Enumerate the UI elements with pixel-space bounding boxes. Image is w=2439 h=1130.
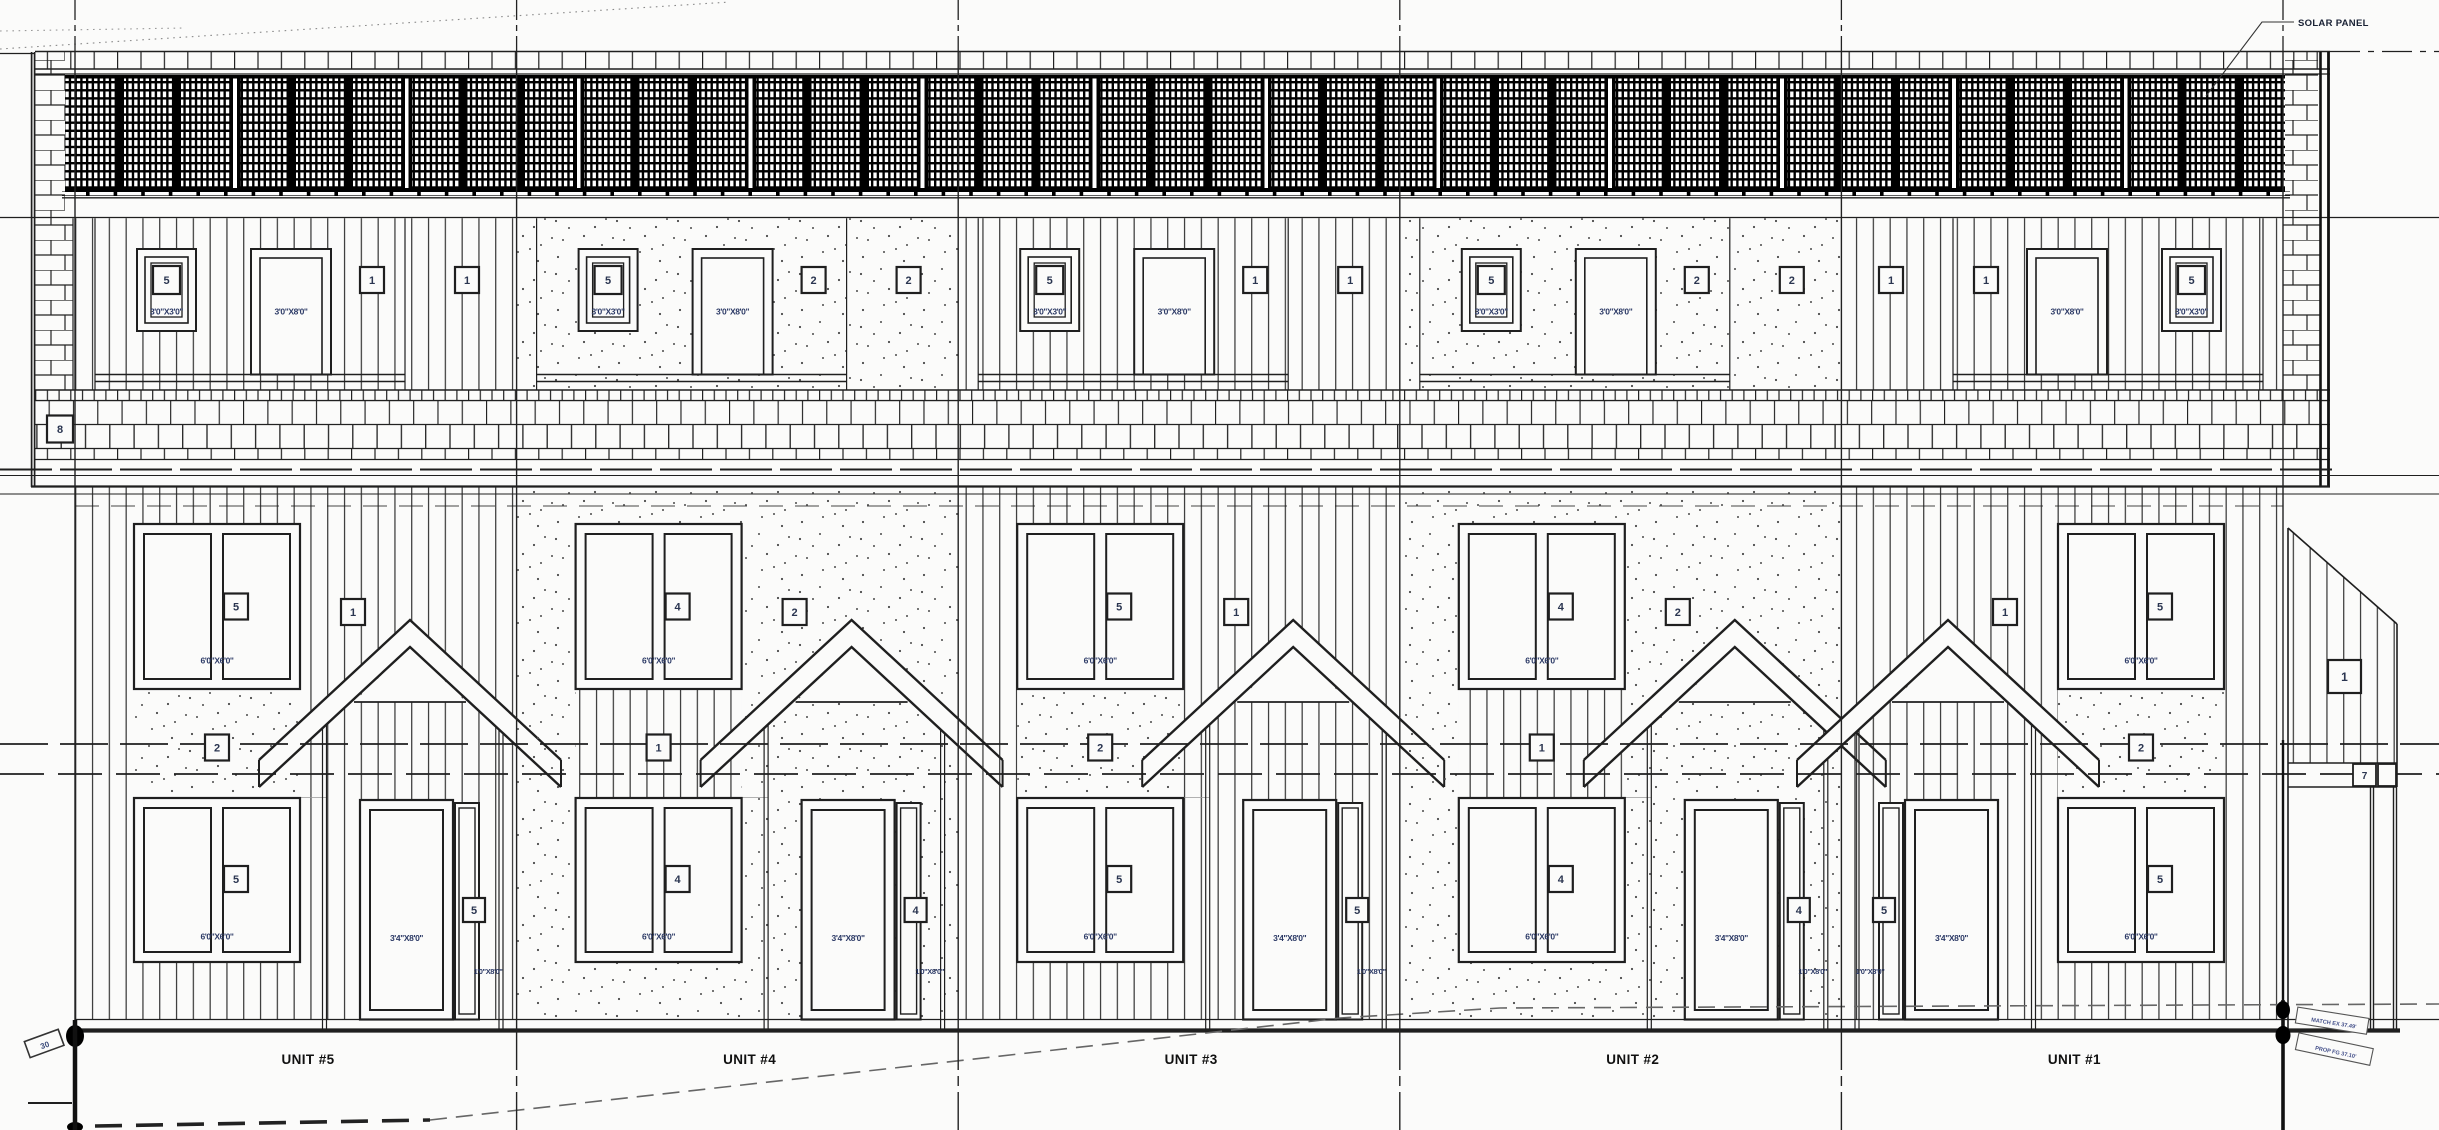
svg-text:6'0"X6'0": 6'0"X6'0": [1084, 932, 1117, 942]
svg-text:2: 2: [1675, 607, 1681, 619]
svg-text:3'0"X8'0": 3'0"X8'0": [2050, 307, 2083, 317]
svg-text:5: 5: [1116, 602, 1122, 614]
svg-text:5: 5: [1354, 905, 1360, 917]
svg-text:5: 5: [1047, 275, 1053, 287]
svg-text:5: 5: [233, 874, 239, 886]
svg-text:4: 4: [1558, 602, 1565, 614]
svg-text:UNIT #4: UNIT #4: [723, 1052, 776, 1067]
svg-text:1: 1: [350, 607, 356, 619]
svg-text:3'4"X8'0": 3'4"X8'0": [390, 933, 423, 943]
svg-text:5: 5: [1488, 275, 1494, 287]
svg-text:3'0"X8'0": 3'0"X8'0": [274, 307, 307, 317]
svg-text:1'0"X8'0": 1'0"X8'0": [1856, 967, 1886, 976]
svg-text:4: 4: [1558, 874, 1565, 886]
svg-text:6'0"X6'0": 6'0"X6'0": [642, 656, 675, 666]
svg-text:1: 1: [369, 275, 375, 287]
svg-text:3'0"X3'0": 3'0"X3'0": [592, 307, 625, 317]
svg-text:1: 1: [2341, 670, 2348, 684]
svg-text:UNIT #3: UNIT #3: [1165, 1052, 1218, 1067]
svg-text:2: 2: [2138, 743, 2144, 755]
svg-text:1'0"X8'0": 1'0"X8'0": [915, 967, 945, 976]
svg-text:6'0"X6'0": 6'0"X6'0": [1084, 656, 1117, 666]
svg-text:1: 1: [1888, 275, 1894, 287]
svg-text:1: 1: [656, 743, 662, 755]
svg-text:6'0"X6'0": 6'0"X6'0": [642, 932, 675, 942]
svg-text:7: 7: [2362, 771, 2368, 782]
svg-text:1: 1: [1539, 743, 1545, 755]
svg-text:3'0"X3'0": 3'0"X3'0": [1475, 307, 1508, 317]
svg-text:5: 5: [471, 905, 477, 917]
svg-text:3'0"X8'0": 3'0"X8'0": [1158, 307, 1191, 317]
svg-text:1: 1: [464, 275, 470, 287]
svg-text:1: 1: [1347, 275, 1353, 287]
svg-text:3'0"X3'0": 3'0"X3'0": [1033, 307, 1066, 317]
svg-text:3'4"X8'0": 3'4"X8'0": [1273, 933, 1306, 943]
svg-text:1'0"X8'0": 1'0"X8'0": [1357, 967, 1387, 976]
svg-text:1'0"X8'0": 1'0"X8'0": [1798, 967, 1828, 976]
svg-text:2: 2: [214, 743, 220, 755]
svg-text:5: 5: [1881, 905, 1887, 917]
svg-text:2: 2: [1097, 743, 1103, 755]
svg-text:1: 1: [1983, 275, 1989, 287]
svg-text:8: 8: [57, 424, 63, 436]
svg-text:3'4"X8'0": 3'4"X8'0": [832, 933, 865, 943]
svg-text:6'0"X6'0": 6'0"X6'0": [200, 656, 233, 666]
svg-text:2: 2: [792, 607, 798, 619]
svg-text:5: 5: [2188, 275, 2194, 287]
svg-text:6'0"X6'0": 6'0"X6'0": [1525, 656, 1558, 666]
svg-text:2: 2: [1789, 275, 1795, 287]
svg-text:5: 5: [233, 602, 239, 614]
svg-text:3'0"X3'0": 3'0"X3'0": [2175, 307, 2208, 317]
svg-text:3'0"X8'0": 3'0"X8'0": [716, 307, 749, 317]
svg-text:3'0"X8'0": 3'0"X8'0": [1599, 307, 1632, 317]
svg-text:2: 2: [906, 275, 912, 287]
svg-text:5: 5: [2157, 874, 2163, 886]
svg-text:6'0"X6'0": 6'0"X6'0": [1525, 932, 1558, 942]
svg-text:UNIT #5: UNIT #5: [281, 1052, 334, 1067]
svg-text:UNIT #2: UNIT #2: [1606, 1052, 1659, 1067]
svg-text:1: 1: [2002, 607, 2008, 619]
svg-text:5: 5: [1116, 874, 1122, 886]
svg-text:SOLAR PANEL: SOLAR PANEL: [2298, 18, 2369, 29]
svg-text:2: 2: [811, 275, 817, 287]
svg-text:6'0"X6'0": 6'0"X6'0": [2124, 656, 2157, 666]
svg-text:2: 2: [1694, 275, 1700, 287]
svg-text:5: 5: [605, 275, 611, 287]
svg-text:1: 1: [1233, 607, 1239, 619]
svg-text:3'0"X3'0": 3'0"X3'0": [150, 307, 183, 317]
svg-text:5: 5: [163, 275, 169, 287]
svg-text:3'4"X8'0": 3'4"X8'0": [1935, 933, 1968, 943]
svg-text:UNIT #1: UNIT #1: [2048, 1052, 2101, 1067]
svg-text:4: 4: [675, 602, 682, 614]
svg-text:6'0"X6'0": 6'0"X6'0": [200, 932, 233, 942]
svg-text:4: 4: [675, 874, 682, 886]
svg-text:5: 5: [2157, 602, 2163, 614]
svg-text:4: 4: [1796, 905, 1803, 917]
svg-text:1'0"X8'0": 1'0"X8'0": [474, 967, 504, 976]
svg-text:4: 4: [913, 905, 920, 917]
svg-text:6'0"X6'0": 6'0"X6'0": [2124, 932, 2157, 942]
svg-text:3'4"X8'0": 3'4"X8'0": [1715, 933, 1748, 943]
svg-text:1: 1: [1252, 275, 1258, 287]
